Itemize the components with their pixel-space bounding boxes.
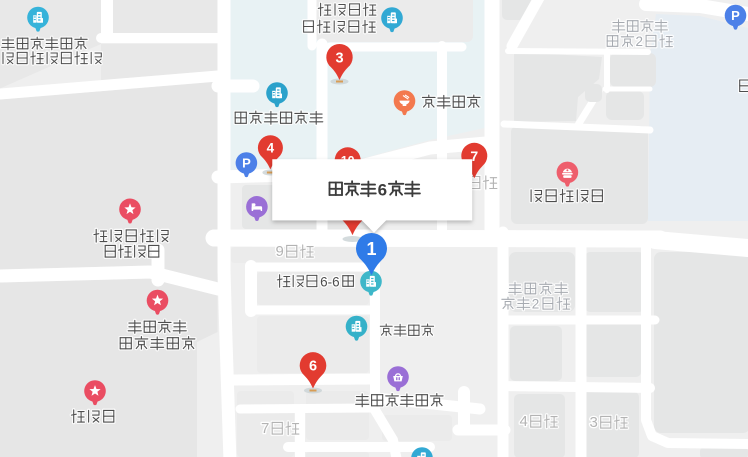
svg-text:P: P: [731, 8, 740, 23]
svg-text:6-6: 6-6: [320, 275, 340, 290]
svg-text:2: 2: [636, 34, 644, 49]
svg-text:6: 6: [309, 359, 317, 375]
svg-text:P: P: [242, 156, 251, 171]
svg-text:3: 3: [335, 50, 343, 66]
svg-text:7: 7: [261, 420, 269, 437]
svg-text:3: 3: [590, 414, 598, 431]
svg-text:4: 4: [267, 141, 275, 156]
svg-text:6: 6: [378, 181, 387, 200]
svg-text:2: 2: [532, 297, 540, 312]
svg-text:9: 9: [276, 243, 284, 260]
svg-text:4: 4: [520, 413, 528, 430]
svg-text:1: 1: [366, 239, 376, 259]
